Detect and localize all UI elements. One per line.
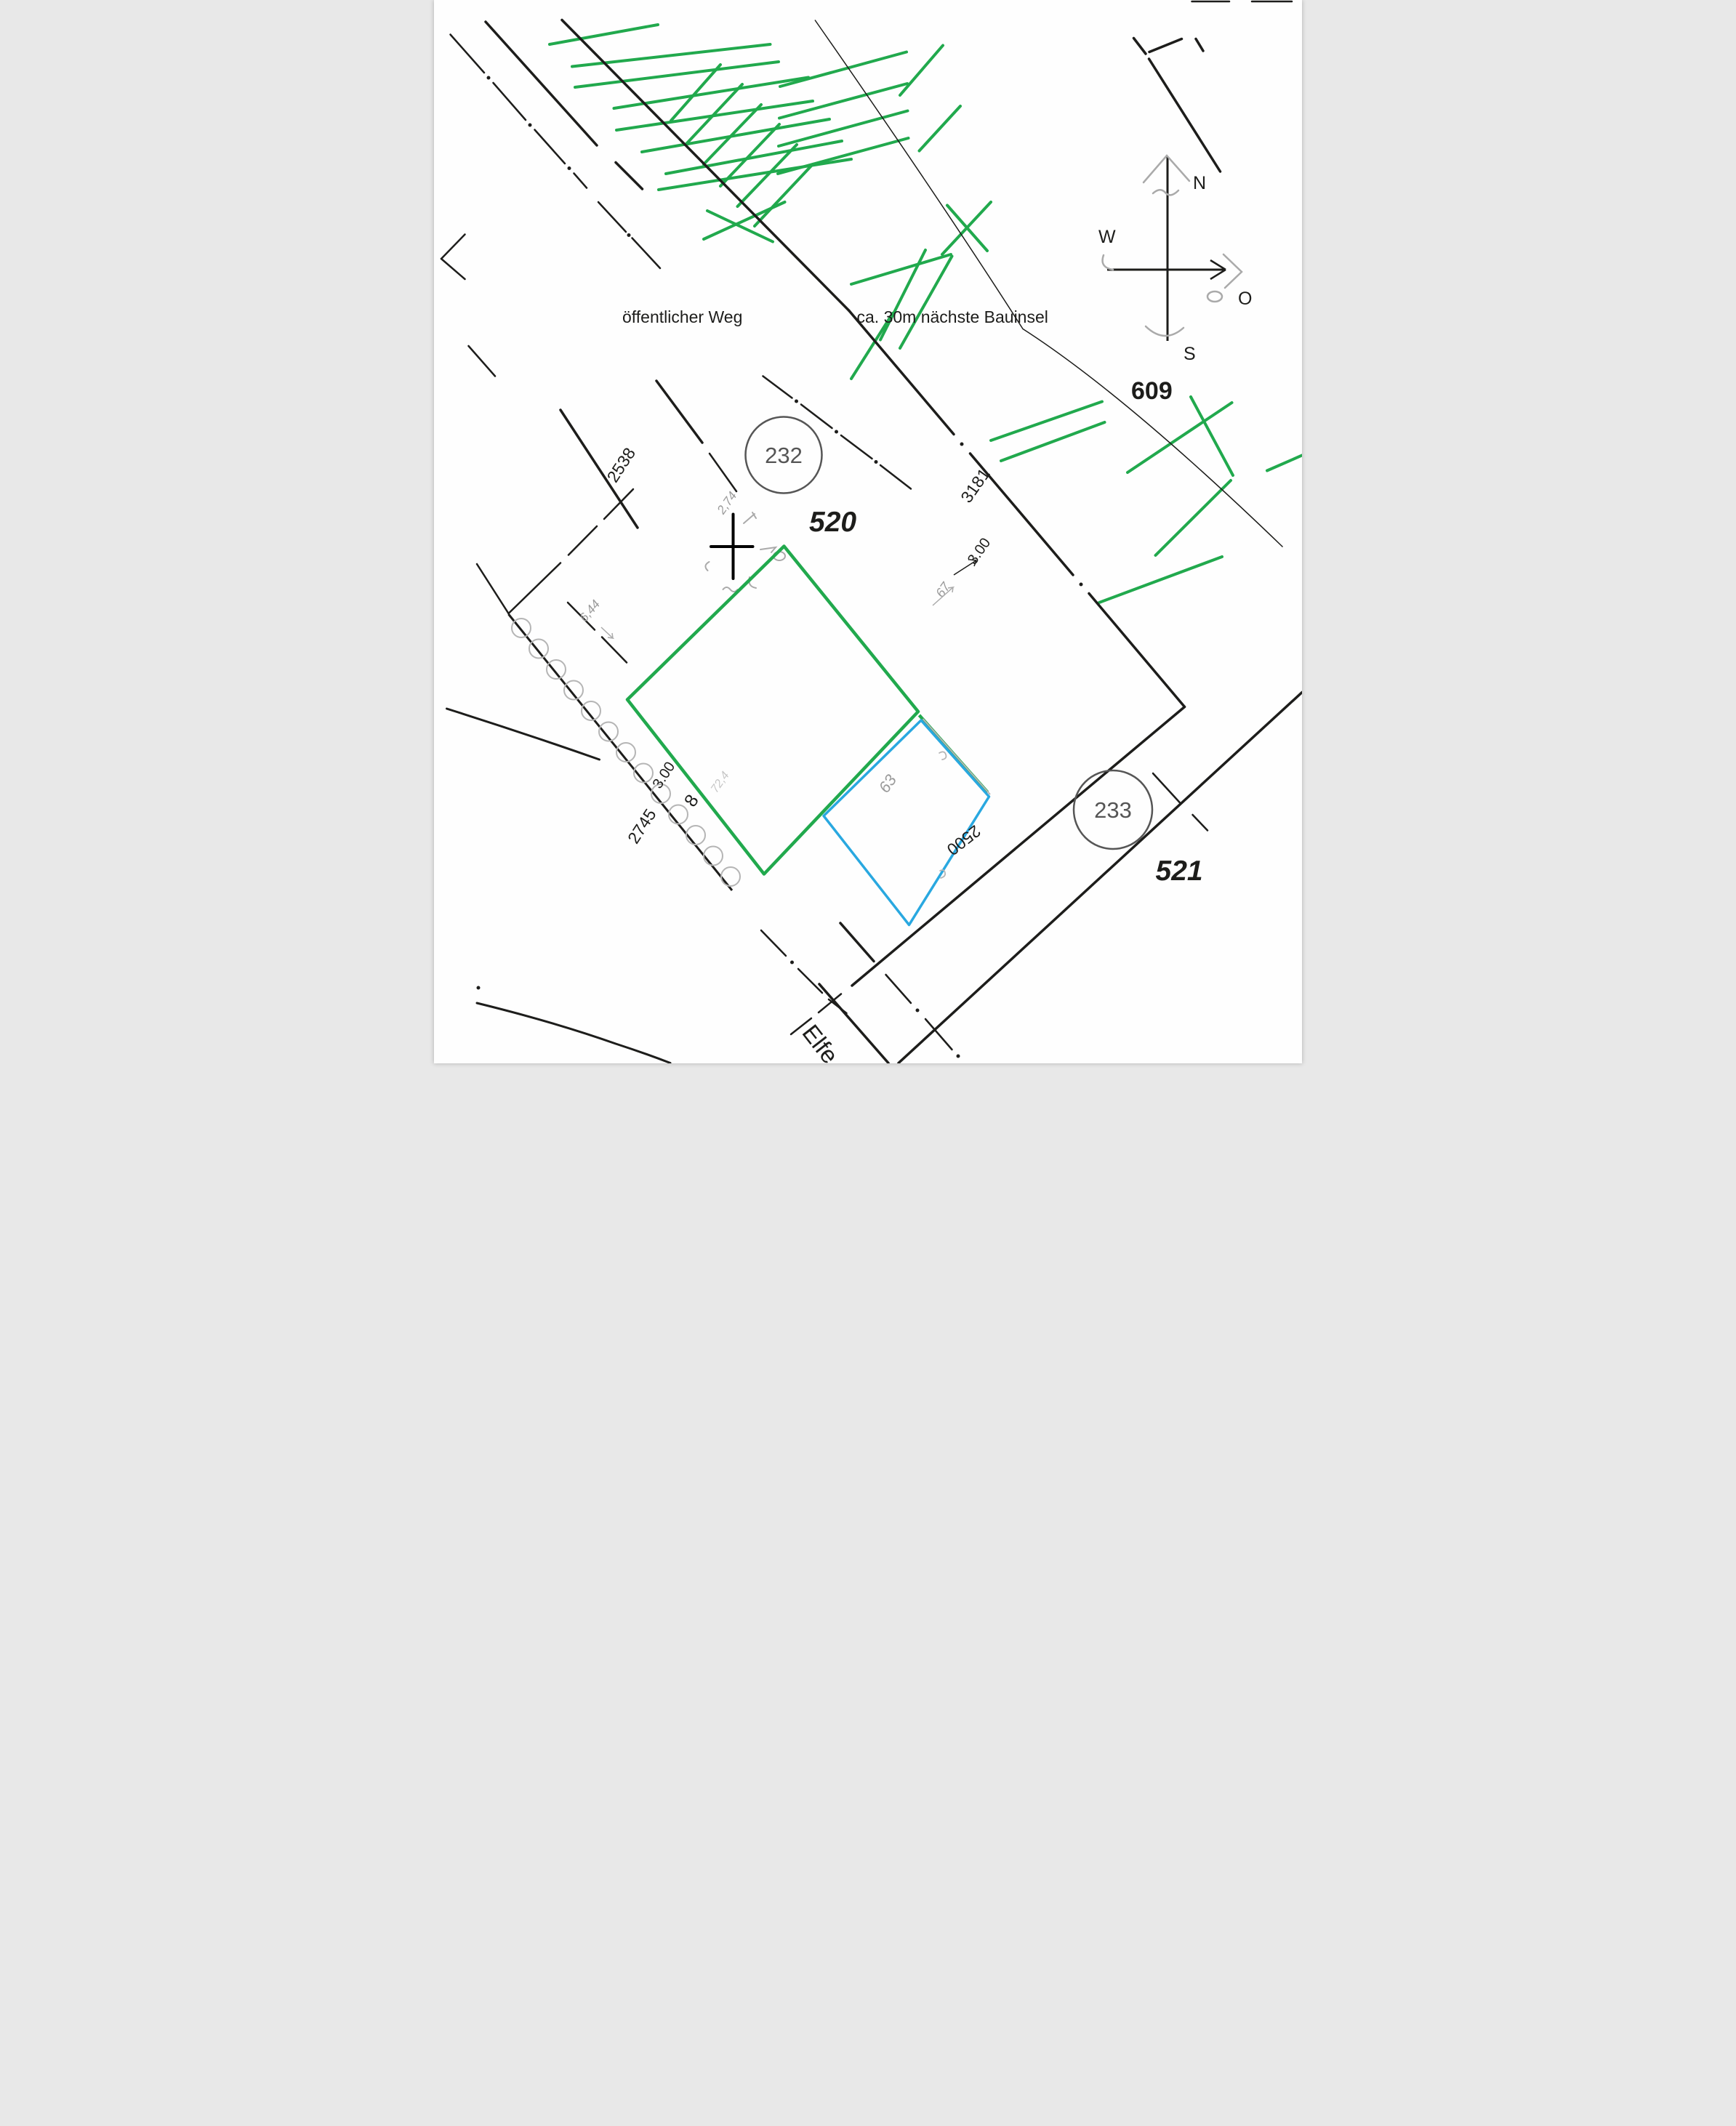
- point-232-label: 232: [765, 443, 803, 468]
- site-plan-sheet: N W O S öffentlicher Weg ca. 30m nächste…: [434, 0, 1302, 1063]
- compass-east-label: O: [1238, 289, 1252, 309]
- dash-dot-boundaries-segment: [1193, 815, 1208, 831]
- green-hatching-segment: [1128, 403, 1232, 472]
- dash-dot-boundaries-segment: [763, 377, 792, 398]
- street-name-partial: Elfe: [797, 1020, 843, 1063]
- pencil-note-cross: 2,74: [714, 489, 739, 518]
- dash-dot-boundaries-segment: [1153, 773, 1181, 804]
- green-hatching-segment: [851, 254, 951, 284]
- green-hatching-segment: [920, 106, 961, 151]
- measure-ne-side: 3181: [957, 464, 994, 506]
- green-hatching-segment: [572, 44, 771, 67]
- green-hatching-segment: [1267, 456, 1302, 471]
- green-hatching-segment: [991, 402, 1102, 441]
- public-way-label: öffentlicher Weg: [622, 307, 742, 326]
- green-hatching-segment: [1191, 397, 1233, 475]
- fence-pencil-loops-segment: [564, 681, 583, 700]
- dash-dot-boundaries-segment: [602, 637, 627, 663]
- boundary-dots-segment: [875, 460, 878, 464]
- annex-pencil-line: [923, 719, 991, 794]
- road-lines-segment: [840, 923, 874, 962]
- road-lines-segment: [1149, 59, 1221, 172]
- compass-south-label: S: [1184, 344, 1196, 364]
- annex-outline-blue: [824, 720, 989, 925]
- flur-521-label: 521: [1156, 855, 1203, 887]
- dash-dot-boundaries-segment: [469, 346, 496, 377]
- boundary-dots-segment: [1080, 583, 1083, 587]
- dash-dot-boundaries-segment: [451, 35, 485, 73]
- fence-pencil-loops-segment: [547, 660, 566, 679]
- dash-dot-boundaries-segment: [535, 130, 566, 164]
- bauinsel-annotation: ca. 30m nächste Bauinsel: [857, 307, 1048, 326]
- fence-pencil-loops: [512, 619, 740, 886]
- green-hatching-segment: [550, 25, 658, 44]
- survey-cross-pencil-doodles: [705, 512, 785, 592]
- compass-pencil-marks: [1103, 156, 1242, 336]
- survey-cross: [711, 515, 753, 579]
- road-lines-segment: [1196, 39, 1203, 52]
- green-hatching-segment: [900, 257, 952, 349]
- boundary-dots-segment: [790, 961, 794, 965]
- dash-dot-boundaries-segment: [441, 259, 465, 279]
- road-lines-segment: [1134, 39, 1146, 55]
- boundary-dots-segment: [487, 76, 491, 80]
- green-hatching-segment: [659, 159, 851, 190]
- measure-sw-side: 2745: [624, 805, 660, 847]
- green-hatching-segment: [666, 141, 842, 174]
- measure-nw-side: 2538: [603, 444, 639, 486]
- fence-pencil-loops-segment: [529, 640, 548, 659]
- compass-west-label: W: [1098, 227, 1116, 247]
- compass-rose: N W O S: [1098, 156, 1252, 364]
- dash-dot-boundaries-segment: [710, 454, 736, 491]
- dash-dot-boundaries-segment: [568, 526, 597, 555]
- green-hatching-segment: [642, 119, 829, 152]
- green-hatching-segment: [1099, 557, 1222, 603]
- pencil-squiggles: [939, 752, 946, 878]
- road-lines-segment: [486, 22, 597, 145]
- curved-road-edge-lower: [477, 1003, 670, 1063]
- road-lines-segment: [656, 381, 702, 443]
- ne-parcel-boundary-segment: [1089, 594, 1185, 707]
- ne-parcel-boundary-segment: [849, 311, 954, 435]
- pencil-arrow-west-icon: [601, 627, 613, 638]
- curved-road-edge-upper: [447, 709, 600, 760]
- dash-dot-boundaries-segment: [509, 563, 561, 614]
- boundary-dots-segment: [627, 233, 631, 237]
- dash-dot-boundaries-segment: [441, 235, 465, 259]
- dash-dot-boundaries-segment: [761, 930, 786, 956]
- compass-north-label: N: [1193, 173, 1206, 193]
- dash-dot-boundaries-segment: [598, 202, 626, 232]
- measure-se-side: 2500: [944, 821, 984, 859]
- road-lines-segment: [1149, 39, 1182, 52]
- boundary-dots-segment: [795, 400, 798, 403]
- fence-pencil-loops-segment: [512, 619, 531, 637]
- ne-parcel-boundary: [849, 311, 1185, 707]
- boundary-dots: [477, 76, 1083, 1058]
- pencil-note-west: 6,44: [576, 597, 603, 625]
- dash-dot-boundaries-segment: [494, 83, 526, 120]
- measure-ne-offset: 3.00: [965, 535, 994, 568]
- dash-dot-boundaries-segment: [798, 969, 822, 993]
- green-hatching-segment: [780, 52, 907, 87]
- fence-pencil-loops-segment: [704, 847, 723, 866]
- boundary-dots-segment: [916, 1009, 920, 1012]
- fence-pencil-loops-segment: [721, 867, 740, 886]
- pencil-note-faint: 72,4: [709, 770, 732, 795]
- dash-dot-boundaries-segment: [477, 564, 509, 613]
- ne-offset-arrow-icon: [954, 560, 976, 575]
- site-plan-drawing: N W O S öffentlicher Weg ca. 30m nächste…: [434, 0, 1302, 1063]
- road-lines-segment: [616, 163, 643, 190]
- dash-dot-boundaries-segment: [886, 975, 912, 1003]
- boundary-dots-segment: [568, 166, 571, 170]
- boundary-dots-segment: [477, 986, 481, 990]
- flur-520-label: 520: [809, 507, 856, 538]
- dash-dot-boundaries-segment: [880, 465, 911, 489]
- point-233-label: 233: [1094, 797, 1132, 823]
- boundary-dots-segment: [835, 430, 838, 434]
- green-hatching-segment: [1156, 480, 1231, 555]
- dash-dot-boundaries-segment: [632, 238, 661, 269]
- dash-dot-boundaries-segment: [574, 174, 587, 188]
- green-hatching-segment: [779, 84, 907, 118]
- building-outline-green: [627, 547, 988, 874]
- main-building-green: [627, 547, 918, 874]
- dash-dot-boundaries-segment: [841, 435, 872, 459]
- boundary-dots-segment: [957, 1055, 960, 1058]
- fence-pencil-loops-segment: [686, 826, 705, 845]
- boundary-dots-segment: [960, 443, 964, 446]
- road-lines-segment: [899, 693, 1302, 1063]
- green-hatching-segment: [1001, 422, 1105, 461]
- boundary-dots-segment: [529, 124, 532, 127]
- pencil-note-annex: 63: [875, 770, 901, 796]
- parcel-609-label: 609: [1131, 377, 1173, 405]
- curved-road-edges: [447, 709, 671, 1063]
